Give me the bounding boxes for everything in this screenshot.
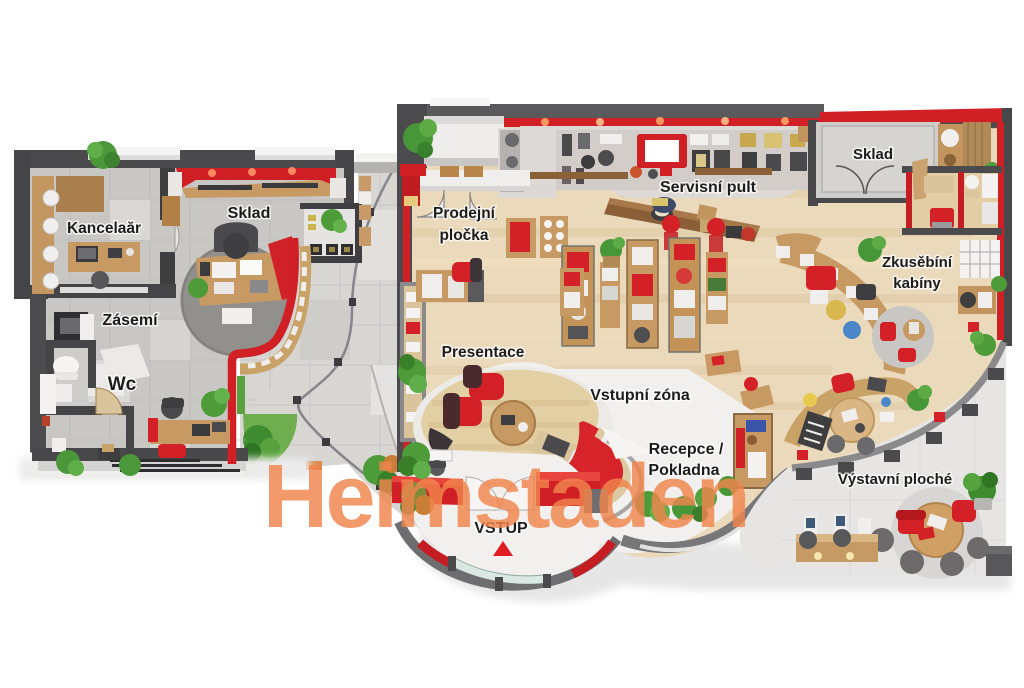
- svg-text:Prodejní: Prodejní: [433, 205, 496, 222]
- svg-text:Sklad: Sklad: [853, 146, 893, 163]
- svg-text:Zkusěbíní: Zkusěbíní: [882, 254, 953, 271]
- svg-text:Wc: Wc: [108, 374, 137, 395]
- svg-text:Výstavní ploché: Výstavní ploché: [838, 471, 952, 488]
- svg-text:Zásemí: Zásemí: [102, 312, 158, 329]
- svg-text:Heimstaden: Heimstaden: [263, 447, 748, 547]
- svg-text:Servisní pult: Servisní pult: [660, 179, 757, 196]
- svg-text:Presentace: Presentace: [442, 344, 525, 361]
- svg-text:Vstupní zóna: Vstupní zóna: [590, 387, 690, 404]
- svg-text:pločka: pločka: [439, 227, 488, 244]
- svg-text:kabíny: kabíny: [893, 275, 941, 292]
- svg-text:Kancelaăr: Kancelaăr: [67, 220, 141, 237]
- svg-text:Sklad: Sklad: [228, 205, 271, 222]
